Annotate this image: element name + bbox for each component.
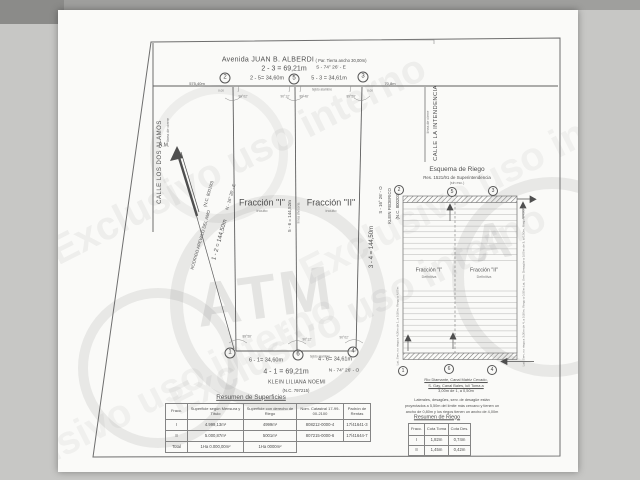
cell-padron: 17/41641-3 xyxy=(344,420,371,431)
cell-fracc: II xyxy=(409,446,425,456)
inset-scale-note: (sin esc.) xyxy=(450,182,465,186)
cell-padron: 17/41644-7 xyxy=(344,431,371,442)
fence-note-bottom: tejido alambre xyxy=(310,355,330,358)
corner-angle: 90°02' xyxy=(340,336,349,339)
cell-fracc: II xyxy=(166,431,188,442)
inset-caption-right-bottom: Lat. Serv. no riega a 3,00m de 4, a 0,50… xyxy=(522,288,525,367)
left-street-name: CALLE LOS DOS ALAMOS xyxy=(157,120,163,204)
inset-fraction-1-note: Definitiva xyxy=(422,276,437,280)
cell-padron xyxy=(344,442,371,453)
east-segment: 3 - 4 = 144,50m xyxy=(369,226,375,268)
inset-vertex-point: 5 xyxy=(447,187,457,197)
vertex-point: 5 xyxy=(289,74,300,85)
fraction-1-note: inculto xyxy=(257,210,268,214)
cell-fracc: Total xyxy=(166,442,188,453)
fence-note-top: tejido alambre xyxy=(312,88,332,91)
scanned-survey-plan: Exclusivo uso interno Exclusivo uso inte… xyxy=(0,0,640,480)
column-header: Padrón de Rentas xyxy=(344,404,371,420)
vertex-point: 2 xyxy=(220,73,231,84)
fraction-1-label: Fracción "I" xyxy=(239,199,285,208)
inset-vertex-point: 3 xyxy=(488,186,498,196)
distance-to-right-street: 70,8m xyxy=(384,82,395,86)
cell-des: 0,42m xyxy=(449,446,471,456)
column-header: Superficie con derecho de Riego xyxy=(244,404,297,420)
avenue-segment-left: 2 - 5= 34,60m xyxy=(250,76,284,82)
corner-angle: 89°58' xyxy=(243,335,252,338)
column-header: Fracc. xyxy=(409,424,425,436)
fraction-2-note: inculto xyxy=(326,210,337,214)
irrigation-table-title: Resumen de Riego xyxy=(414,415,460,420)
distance-to-left-street: 575,40m xyxy=(189,82,205,86)
inset-vertex-point: 4 xyxy=(487,365,497,375)
inset-vertex-point: 2 xyxy=(394,185,404,195)
left-street-closing-line-note: línea de cierre xyxy=(167,118,171,142)
column-header: Fracc. xyxy=(166,404,188,420)
cell-catastral xyxy=(297,442,344,453)
east-neighbor-nc: (N.C. 800203) xyxy=(396,193,400,220)
south-neighbor-owner: KLEIN LILIANA NOEMI xyxy=(268,381,326,386)
inset-vertex-point: 6 xyxy=(444,364,454,374)
irrigation-summary-table: Fracc. Cota Toma Cota Des. I 1,82m 0,74m… xyxy=(408,423,471,456)
divider-note: línea divisoria xyxy=(297,203,300,224)
offset-mark: 0,00 xyxy=(367,90,373,93)
north-label: N.M. xyxy=(159,144,170,149)
inset-source-line: S. Gay, Canal Bales, luli Toma a xyxy=(428,384,483,388)
table-row: I 4.999,13m² 4999m² 808212-0000-4 17/416… xyxy=(166,420,371,431)
east-neighbor-owner: KLEIN FEDERICO xyxy=(388,188,392,224)
cell-catastral: 808212-0000-4 xyxy=(297,420,344,431)
south-segment-left: 6 - 1= 34,60m xyxy=(249,358,283,364)
south-bearing: N - 74° 26' - O xyxy=(329,369,360,374)
table-row: II 1,45m 0,42m xyxy=(409,446,471,456)
column-header: Nom. Catastral 17-99-00-2100 xyxy=(297,404,344,420)
avenue-segment-total: 2 - 3 = 69,21m xyxy=(261,66,306,73)
south-neighbor-nc: (N.C. 797215) xyxy=(283,389,310,393)
cell-toma: 1,45m xyxy=(425,446,449,456)
cell-mensura: 1Ha 0.000,00m² xyxy=(188,442,244,453)
cell-mensura: 5.000,87m² xyxy=(188,431,244,442)
table-row: II 5.000,87m² 5001m² 807215-0000-6 17/41… xyxy=(166,431,371,442)
inset-fraction-2-label: Fracción "II" xyxy=(470,268,498,273)
cell-fracc: I xyxy=(166,420,188,431)
inset-title: Esquema de Riego xyxy=(429,167,484,174)
vertex-point: 6 xyxy=(293,350,304,361)
fraction-2-label: Fracción "II" xyxy=(307,199,355,208)
avenue-name: Avenida JUAN B. ALBERDI xyxy=(222,57,314,64)
inset-resolution: Res. 1521/91 de Superintendencia xyxy=(423,176,491,180)
inset-source-line: Río Diamante, Canal Matriz Cevado, xyxy=(424,378,487,382)
north-arrow xyxy=(170,146,199,216)
cell-riego: 4999m² xyxy=(244,420,297,431)
inset-note-line: Laterales, desagües, serv. de desagüe es… xyxy=(414,399,490,403)
inset-vertex-point: 1 xyxy=(398,366,408,376)
avenue-segment-right: 5 - 3 = 34,61m xyxy=(311,76,347,82)
surfaces-table-title: Resumen de Superficies xyxy=(216,394,286,400)
irrigation-inset-drawing xyxy=(403,196,536,365)
column-header: Superficie según Mensura y Título xyxy=(188,404,244,420)
inset-fraction-1-label: Fracción "I" xyxy=(416,268,442,273)
corner-angle: 90°12' xyxy=(281,95,290,98)
table-row: I 1,82m 0,74m xyxy=(409,436,471,446)
cell-riego: 5001m² xyxy=(244,431,297,442)
divider-segment: 5 - 6 = 144,52m xyxy=(288,200,293,232)
corner-angle: 90°12' xyxy=(303,338,312,341)
cell-fracc: I xyxy=(409,436,425,446)
right-street-closing-line-note: línea de cierre xyxy=(427,111,431,134)
table-header-row: Fracc. Superficie según Mensura y Título… xyxy=(166,404,371,420)
cell-toma: 1,82m xyxy=(425,436,449,446)
cell-des: 0,74m xyxy=(449,436,471,446)
column-header: Cota Des. xyxy=(449,424,471,436)
corner-angle: 89°48' xyxy=(300,95,309,98)
table-header-row: Fracc. Cota Toma Cota Des. xyxy=(409,424,471,436)
right-street-name: CALLE LA INTENDENCIA xyxy=(434,85,440,161)
inset-caption-right-top: Lat. Serv. Desagüe a 3,00m de 3, a 0,50m… xyxy=(522,207,525,287)
corner-angle: 89°58' xyxy=(347,95,356,98)
east-bearing: S - 16° 26' - O xyxy=(379,186,383,213)
inset-source-line: 3,00m de 1, a 0,50m xyxy=(438,389,474,393)
corner-angle: 90°02' xyxy=(239,95,248,98)
column-header: Cota Toma xyxy=(425,424,449,436)
inset-fraction-2-note: Definitiva xyxy=(477,276,492,280)
surfaces-summary-table: Fracc. Superficie según Mensura y Título… xyxy=(165,403,371,453)
avenue-width-note: ( Par. Tierra ancho 30,00m) xyxy=(316,58,367,62)
cell-riego: 1Ha 0000m² xyxy=(244,442,297,453)
vertex-point: 1 xyxy=(225,348,236,359)
cell-mensura: 4.999,13m² xyxy=(188,420,244,431)
south-segment-total: 4 - 1 = 69,21m xyxy=(263,369,308,376)
table-total-row: Total 1Ha 0.000,00m² 1Ha 0000m² xyxy=(166,442,371,453)
offset-mark: 0,00 xyxy=(218,90,224,93)
avenue-bearing: S - 74° 26' - E xyxy=(316,67,346,72)
inset-caption-left: Lat. Serv. no riega a 4,00m de 1, a 0,50… xyxy=(396,287,399,366)
page-border xyxy=(93,38,560,457)
plan-content: Avenida JUAN B. ALBERDI ( Par. Tierra an… xyxy=(0,0,640,480)
cell-catastral: 807215-0000-6 xyxy=(297,431,344,442)
inset-note-line: proyectados a 5,50m del límite más cerca… xyxy=(405,405,499,409)
vertex-point: 3 xyxy=(358,72,369,83)
